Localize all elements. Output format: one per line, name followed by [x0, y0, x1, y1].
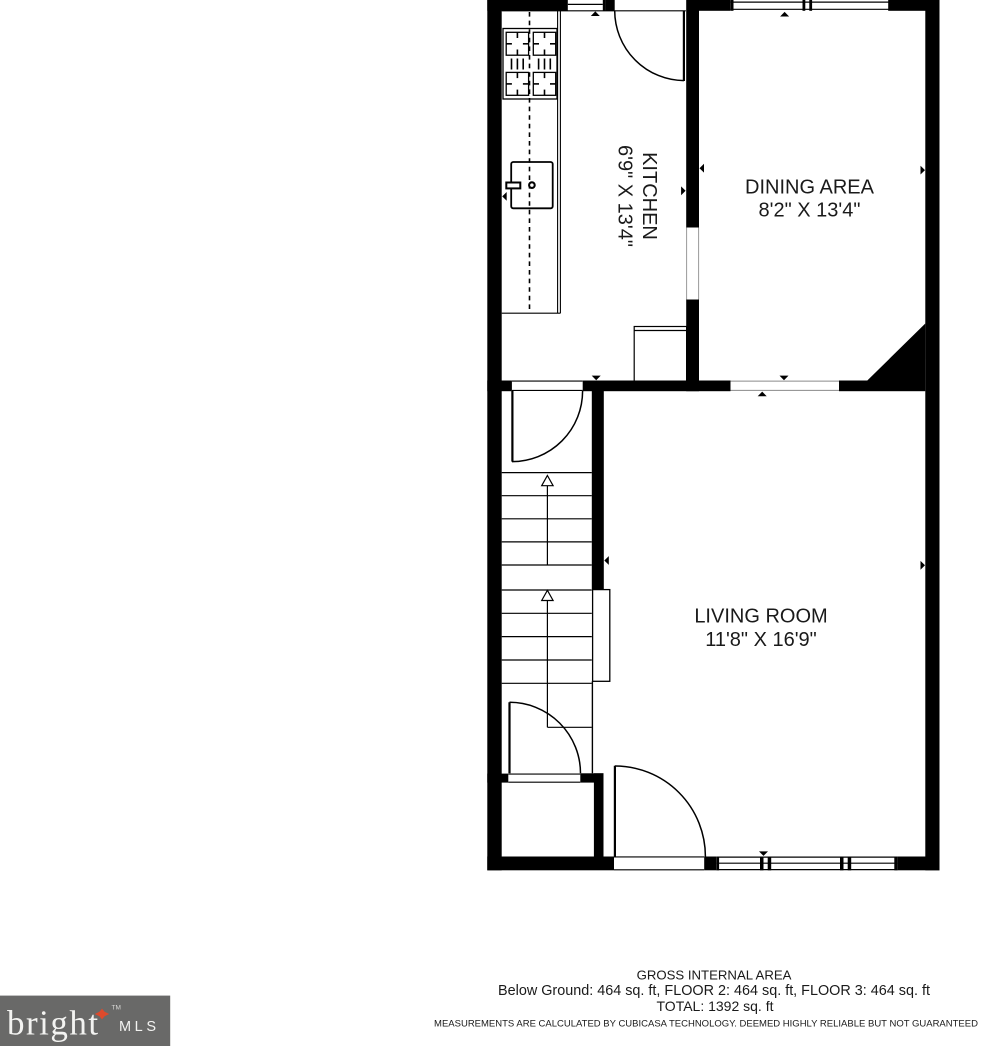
svg-text:TOTAL: 1392 sq. ft: TOTAL: 1392 sq. ft [657, 998, 774, 1014]
svg-text:Below Ground: 464 sq. ft, FLOO: Below Ground: 464 sq. ft, FLOOR 2: 464 s… [498, 983, 930, 999]
svg-text:8'2" X 13'4": 8'2" X 13'4" [759, 200, 861, 222]
svg-text:DINING AREA: DINING AREA [745, 176, 875, 198]
svg-text:6'9" X 13'4": 6'9" X 13'4" [614, 145, 636, 247]
svg-text:11'8" X 16'9": 11'8" X 16'9" [705, 629, 817, 651]
svg-text:KITCHEN: KITCHEN [638, 152, 660, 240]
svg-text:TM: TM [112, 1005, 121, 1012]
svg-text:MEASUREMENTS ARE CALCULATED BY: MEASUREMENTS ARE CALCULATED BY CUBICASA … [434, 1019, 978, 1030]
svg-text:bright: bright [7, 1004, 100, 1043]
svg-text:GROSS INTERNAL AREA: GROSS INTERNAL AREA [637, 967, 792, 982]
svg-text:LIVING ROOM: LIVING ROOM [694, 605, 827, 627]
svg-text:MLS: MLS [119, 1019, 160, 1035]
